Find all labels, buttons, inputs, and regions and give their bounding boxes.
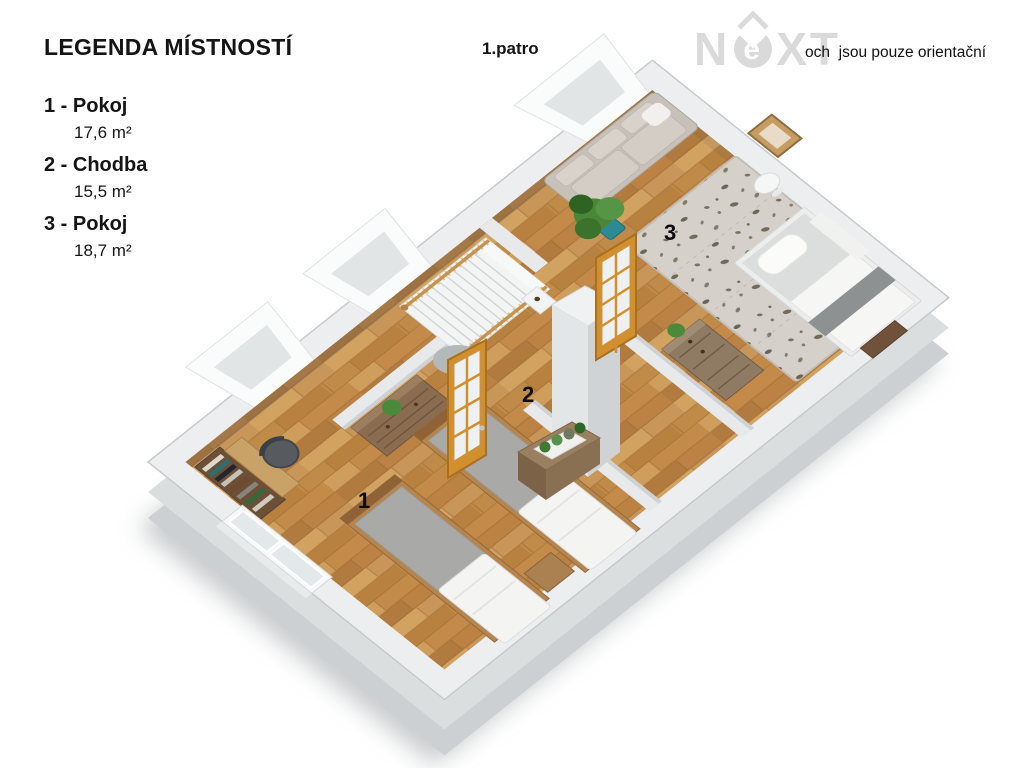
room-label-1: 1 xyxy=(358,488,370,514)
floorplan-rendering xyxy=(0,0,1024,768)
plant-icon xyxy=(575,423,586,434)
building-plan xyxy=(101,7,974,704)
room-label-2: 2 xyxy=(522,382,534,408)
plant-icon xyxy=(564,429,575,440)
door-handle-icon xyxy=(479,425,484,430)
plant-icon xyxy=(552,435,563,446)
page: NeXT LEGENDA MÍSTNOSTÍ 1 - Pokoj 17,6 m²… xyxy=(0,0,1024,768)
room-label-3: 3 xyxy=(664,220,676,246)
door xyxy=(448,340,486,478)
plant-icon xyxy=(540,442,551,453)
